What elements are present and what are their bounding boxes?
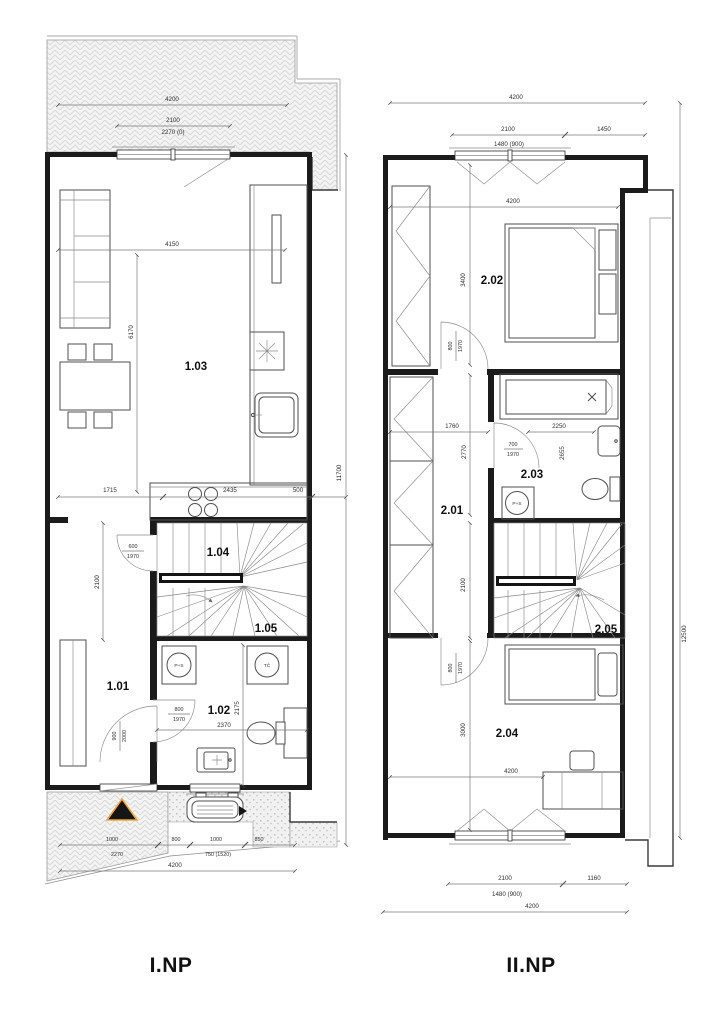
dim-label: 1970 (173, 717, 185, 723)
window-f1-top (112, 147, 235, 187)
dim-label: 800 (172, 837, 181, 843)
dim-label: 4200 (504, 768, 518, 775)
dim-label: 2100 (94, 575, 101, 589)
furniture-f2: P+S (390, 186, 623, 809)
washer-label-f2: P+S (512, 501, 521, 507)
dim-label: 4200 (168, 862, 182, 869)
dim-label: 4150 (165, 241, 179, 248)
floorplan-canvas: P+S TČ (0, 0, 713, 1024)
dim-label: 700 (509, 442, 518, 448)
dim-label: 4200 (165, 96, 179, 103)
neighbor-outline-f2 (625, 190, 673, 866)
dim-label: 1760 (445, 423, 459, 430)
dim-label: 1970 (458, 340, 464, 352)
dim-label: 4200 (509, 94, 523, 101)
dim-label: 2100 (166, 117, 180, 124)
dim-label: 1970 (507, 452, 519, 458)
washer-label-f1: P+S (174, 663, 183, 669)
room-label-205: 2.05 (595, 624, 618, 636)
window-f2-top (449, 148, 571, 184)
dim-label: 1970 (458, 662, 464, 674)
dim-label: 1480 (900) (492, 891, 522, 898)
hall-wardrobes-201 (390, 377, 433, 638)
dim-label: 2100 (460, 578, 467, 592)
window-f2-bottom (449, 809, 571, 844)
dim-label: 2175 (234, 701, 241, 715)
dim-label: 800 (448, 342, 454, 351)
dim-label: 500 (293, 487, 304, 494)
dim-label: 2100 (501, 126, 515, 133)
dim-label: 12500 (681, 625, 688, 643)
stair-door-arc (117, 535, 153, 571)
heatpump-label-f1: TČ (264, 662, 271, 669)
furniture-f1: P+S TČ (60, 185, 307, 772)
dim-label: 800 (448, 664, 454, 673)
desk-204 (543, 751, 623, 809)
toilet-f1 (247, 708, 307, 758)
boiler-symbol (250, 332, 284, 370)
room-labels-f1: 1.03 1.04 1.05 1.01 1.02 (107, 361, 278, 717)
dim-label: 2370 (217, 722, 231, 729)
dim-label: 2770 (461, 445, 468, 459)
dim-label: 1000 (210, 837, 222, 843)
room-label-104: 1.04 (207, 547, 230, 559)
dim-label: 900 (112, 732, 118, 741)
room-label-201: 2.01 (441, 505, 464, 517)
dim-label: 1450 (597, 126, 611, 133)
dim-label: 2250 (552, 423, 566, 430)
dim-label: 4200 (525, 903, 539, 910)
floor1-label: I.NP (121, 954, 221, 978)
washer-symbol-f2: P+S (502, 487, 534, 519)
dim-label: 600 (129, 544, 138, 550)
kitchen-counter (150, 185, 307, 520)
toilet-203 (582, 477, 620, 501)
room-label-103: 1.03 (185, 361, 207, 373)
dim-label: 800 (175, 707, 184, 713)
dim-label: 1480 (900) (494, 141, 524, 148)
room-labels-f2: 2.02 2.01 2.03 2.05 2.04 (441, 275, 618, 740)
room-label-204: 2.04 (496, 728, 519, 740)
bath-sink-f1 (197, 748, 235, 772)
dim-label: 1000 (106, 837, 118, 843)
floor2-label: II.NP (481, 954, 581, 978)
entry-door-arc (100, 706, 157, 762)
terrace-hatch (47, 36, 340, 191)
dim-label: 2270 (111, 852, 123, 858)
dim-label: 2435 (223, 487, 237, 494)
floorplan-sheet: P+S TČ (0, 0, 713, 1024)
dim-label: 6170 (128, 325, 135, 339)
dim-label: 1160 (587, 875, 601, 882)
floor1-plan: P+S TČ (45, 36, 346, 884)
stairs-f1 (157, 523, 307, 636)
dim-label: 4200 (506, 198, 520, 205)
dim-label: 2270 (0) (161, 129, 184, 136)
wardrobe-hall (60, 640, 86, 766)
bath-sink-203 (598, 426, 620, 456)
entrance-door-f1 (100, 784, 157, 791)
heatpump-symbol-f1: TČ (247, 646, 288, 684)
dining-table (60, 344, 130, 428)
washer-symbol-f1: P+S (162, 646, 196, 684)
room-label-101: 1.01 (107, 681, 130, 693)
cooktop (189, 488, 218, 517)
dim-label: 3400 (460, 273, 467, 287)
door-arc-204 (441, 638, 488, 685)
room-label-202: 2.02 (481, 275, 503, 287)
room-label-203: 2.03 (521, 469, 543, 481)
dim-label: 3000 (460, 723, 467, 737)
dim-label: 1715 (103, 487, 117, 494)
dim-label: 850 (255, 837, 264, 843)
dim-label: 2100 (498, 875, 512, 882)
wardrobe-202 (392, 186, 430, 366)
dim-label: 750 (1520) (205, 852, 231, 858)
door-arcs-f1 (100, 535, 195, 762)
stairs-f2 (494, 523, 625, 638)
dim-label: 2000 (122, 730, 128, 742)
room-label-102: 1.02 (208, 705, 230, 717)
floor2-plan: P+S 4200 2100 1450 (383, 94, 688, 912)
stair-direction-arrow-f1 (186, 595, 212, 602)
dim-label: 11700 (336, 464, 343, 481)
outdoor-heat-pump (187, 793, 247, 822)
stair-direction-arrow-f2 (576, 595, 604, 600)
kitchen-sink (251, 393, 298, 437)
dim-label: 2655 (559, 446, 566, 460)
double-bed-202 (505, 224, 618, 342)
dim-label: 1970 (127, 554, 139, 560)
bathtub-203 (500, 374, 618, 419)
sofa (60, 190, 110, 328)
single-bed-204 (505, 645, 623, 704)
room-label-105: 1.05 (255, 623, 278, 635)
dimensions-f2: 4200 2100 1450 1480 (900) 4200 3400 800 … (383, 94, 688, 912)
